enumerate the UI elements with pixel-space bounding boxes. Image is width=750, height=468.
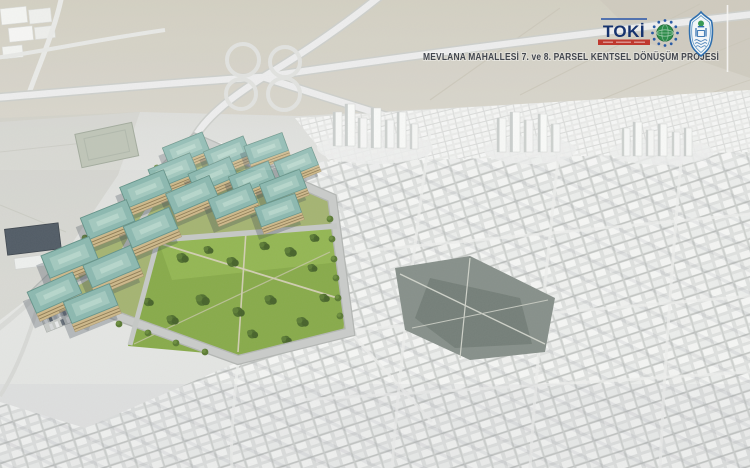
toki-wordmark: TOKİ (603, 22, 645, 41)
scene-canvas: MEVLANA MAHALLESİ 7. ve 8. PARSEL KENTSE… (0, 0, 750, 468)
toki-top-bar (601, 18, 647, 20)
aerial-project-photo: MEVLANA MAHALLESİ 7. ve 8. PARSEL KENTSE… (0, 0, 750, 468)
photo-grain-overlay (0, 0, 750, 468)
toki-red-bar-text (603, 42, 645, 43)
toki-logo: TOKİ (598, 18, 650, 45)
project-title: MEVLANA MAHALLESİ 7. ve 8. PARSEL KENTSE… (423, 50, 719, 63)
